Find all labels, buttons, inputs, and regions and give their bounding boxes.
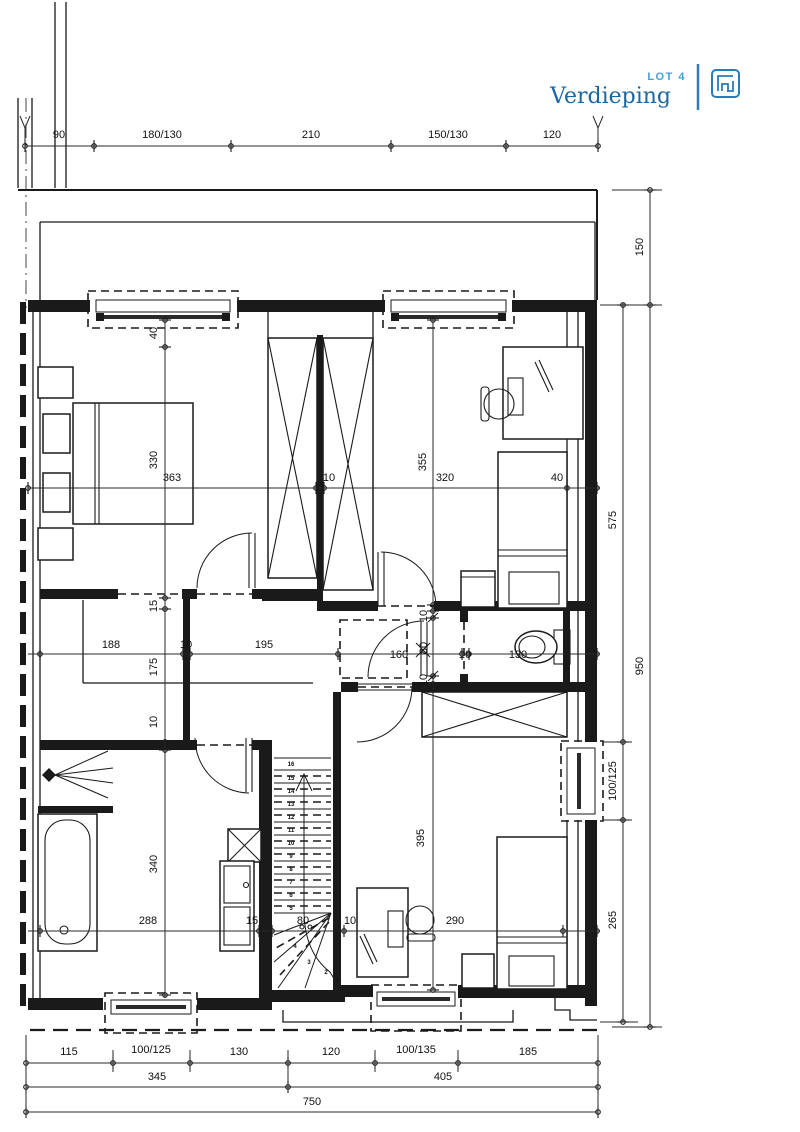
dim-label: 100/135: [396, 1044, 436, 1056]
dim-label: 575: [607, 511, 619, 529]
dim-chain-hall: 188 10 195 160 10 130: [28, 639, 600, 661]
floorplan-icon: [712, 70, 739, 97]
dim-chain-bottom-2: 345 405: [24, 1071, 601, 1093]
dim-label: 355: [417, 453, 429, 471]
stair-number: 8: [289, 867, 293, 873]
stair-number: 10: [288, 841, 295, 847]
stair-number: 16: [288, 762, 295, 768]
dim-label: 210: [302, 129, 320, 141]
dim-label: 10: [148, 716, 160, 728]
floorplan-page: { "title_block": { "lot": "LOT 4", "floo…: [0, 0, 800, 1132]
dim-label: 188: [102, 639, 120, 651]
site-context-lines: [18, 2, 597, 308]
stair-number: 4: [293, 944, 297, 950]
dim-label: 195: [255, 639, 273, 651]
dim-label: 750: [303, 1096, 321, 1108]
dim-chain-top: 90 180/130 210 150/130 120: [20, 116, 603, 152]
dim-chain-right-outer: 150 950: [600, 188, 662, 1030]
dim-label: 15: [148, 600, 160, 612]
stair-number: 5: [289, 906, 293, 912]
dim-label: 405: [434, 1071, 452, 1083]
window-right-wall: [561, 741, 603, 821]
window-bottom-left: [105, 993, 197, 1033]
dim-label: 950: [634, 657, 646, 675]
door-bedroom2: [378, 552, 436, 607]
desk-bedroom2: [503, 347, 583, 439]
floor-title: Verdieping: [549, 84, 671, 109]
stair-number: 12: [288, 815, 295, 821]
dim-label: 340: [148, 855, 160, 873]
dim-label: 330: [148, 451, 160, 469]
desk-bedroom3: [357, 888, 408, 977]
window-bottom-right: [371, 985, 461, 1031]
dim-label: 120: [543, 129, 561, 141]
dim-label: 288: [139, 915, 157, 927]
dim-label: 120: [322, 1046, 340, 1058]
stair-number: 9: [289, 854, 293, 860]
dim-label: 160: [390, 649, 408, 661]
dim-label: 130: [230, 1046, 248, 1058]
dim-label: 40: [148, 327, 160, 339]
desk-chair-bedroom3: [406, 906, 435, 941]
bathtub: [38, 814, 97, 951]
dim-label: 80: [297, 915, 309, 927]
title-block: LOT 4 Verdieping: [549, 64, 739, 110]
dim-chain-bottom-3: 750: [24, 1096, 601, 1118]
stair-number: 6: [289, 893, 293, 899]
window-top-left: [88, 291, 238, 328]
wardrobe-bedroom3: [422, 692, 567, 737]
washbasin-cabinet: [220, 861, 254, 951]
door-wc: [368, 621, 464, 677]
stair-number: 7: [289, 880, 293, 886]
dim-label: 185: [519, 1046, 537, 1058]
dim-label: 175: [148, 658, 160, 676]
dim-label: 363: [163, 472, 181, 484]
staircase: 16 15 14 13 12 11 10 9 8 7 6 5 4 3 2 1: [274, 758, 339, 988]
dim-label: 15: [246, 915, 258, 927]
double-bed: [38, 367, 193, 560]
dim-label: 395: [415, 829, 427, 847]
wardrobe-left: [268, 338, 317, 578]
dim-label: 150/130: [428, 129, 468, 141]
dim-chain-bottom-1: 115 100/125 130 120 100/135 185: [24, 1044, 601, 1069]
dim-label: 80: [418, 642, 430, 654]
dim-label: 345: [148, 1071, 166, 1083]
door-bathroom: [195, 738, 252, 793]
dim-label: 100/125: [131, 1044, 171, 1056]
window-top-right: [383, 291, 514, 328]
dim-label: 40: [551, 472, 563, 484]
dim-label: 290: [446, 915, 464, 927]
single-bed-bedroom3: [462, 837, 567, 989]
stair-number: 2: [324, 970, 328, 976]
dim-label: 115: [60, 1046, 78, 1058]
shower: [38, 751, 113, 813]
dim-label: 320: [436, 472, 454, 484]
dim-label: 180/130: [142, 129, 182, 141]
wardrobe-right: [323, 338, 373, 590]
dim-label: 10: [344, 915, 356, 927]
door-bedroom1: [118, 533, 255, 594]
stair-number: 15: [288, 776, 295, 782]
dim-label: 150: [634, 238, 646, 256]
dim-label: 10: [418, 610, 430, 622]
stair-number: 3: [307, 960, 311, 966]
dim-label: 100/125: [607, 761, 619, 801]
dim-label: 90: [53, 129, 65, 141]
stair-number: 13: [288, 802, 295, 808]
dim-chain-right-inner: 575 100/125 265: [600, 303, 638, 1025]
lot-label: LOT 4: [647, 71, 686, 83]
dim-label: 265: [607, 911, 619, 929]
duct-shaft: [228, 829, 261, 862]
floor-plan-drawing: 16 15 14 13 12 11 10 9 8 7 6 5 4 3 2 1 9…: [0, 0, 800, 1132]
door-bedroom3: [357, 684, 412, 742]
stair-number: 11: [288, 828, 295, 834]
stair-number: 14: [288, 789, 295, 795]
dim-label: 130: [509, 649, 527, 661]
dim-label: 10: [323, 472, 335, 484]
